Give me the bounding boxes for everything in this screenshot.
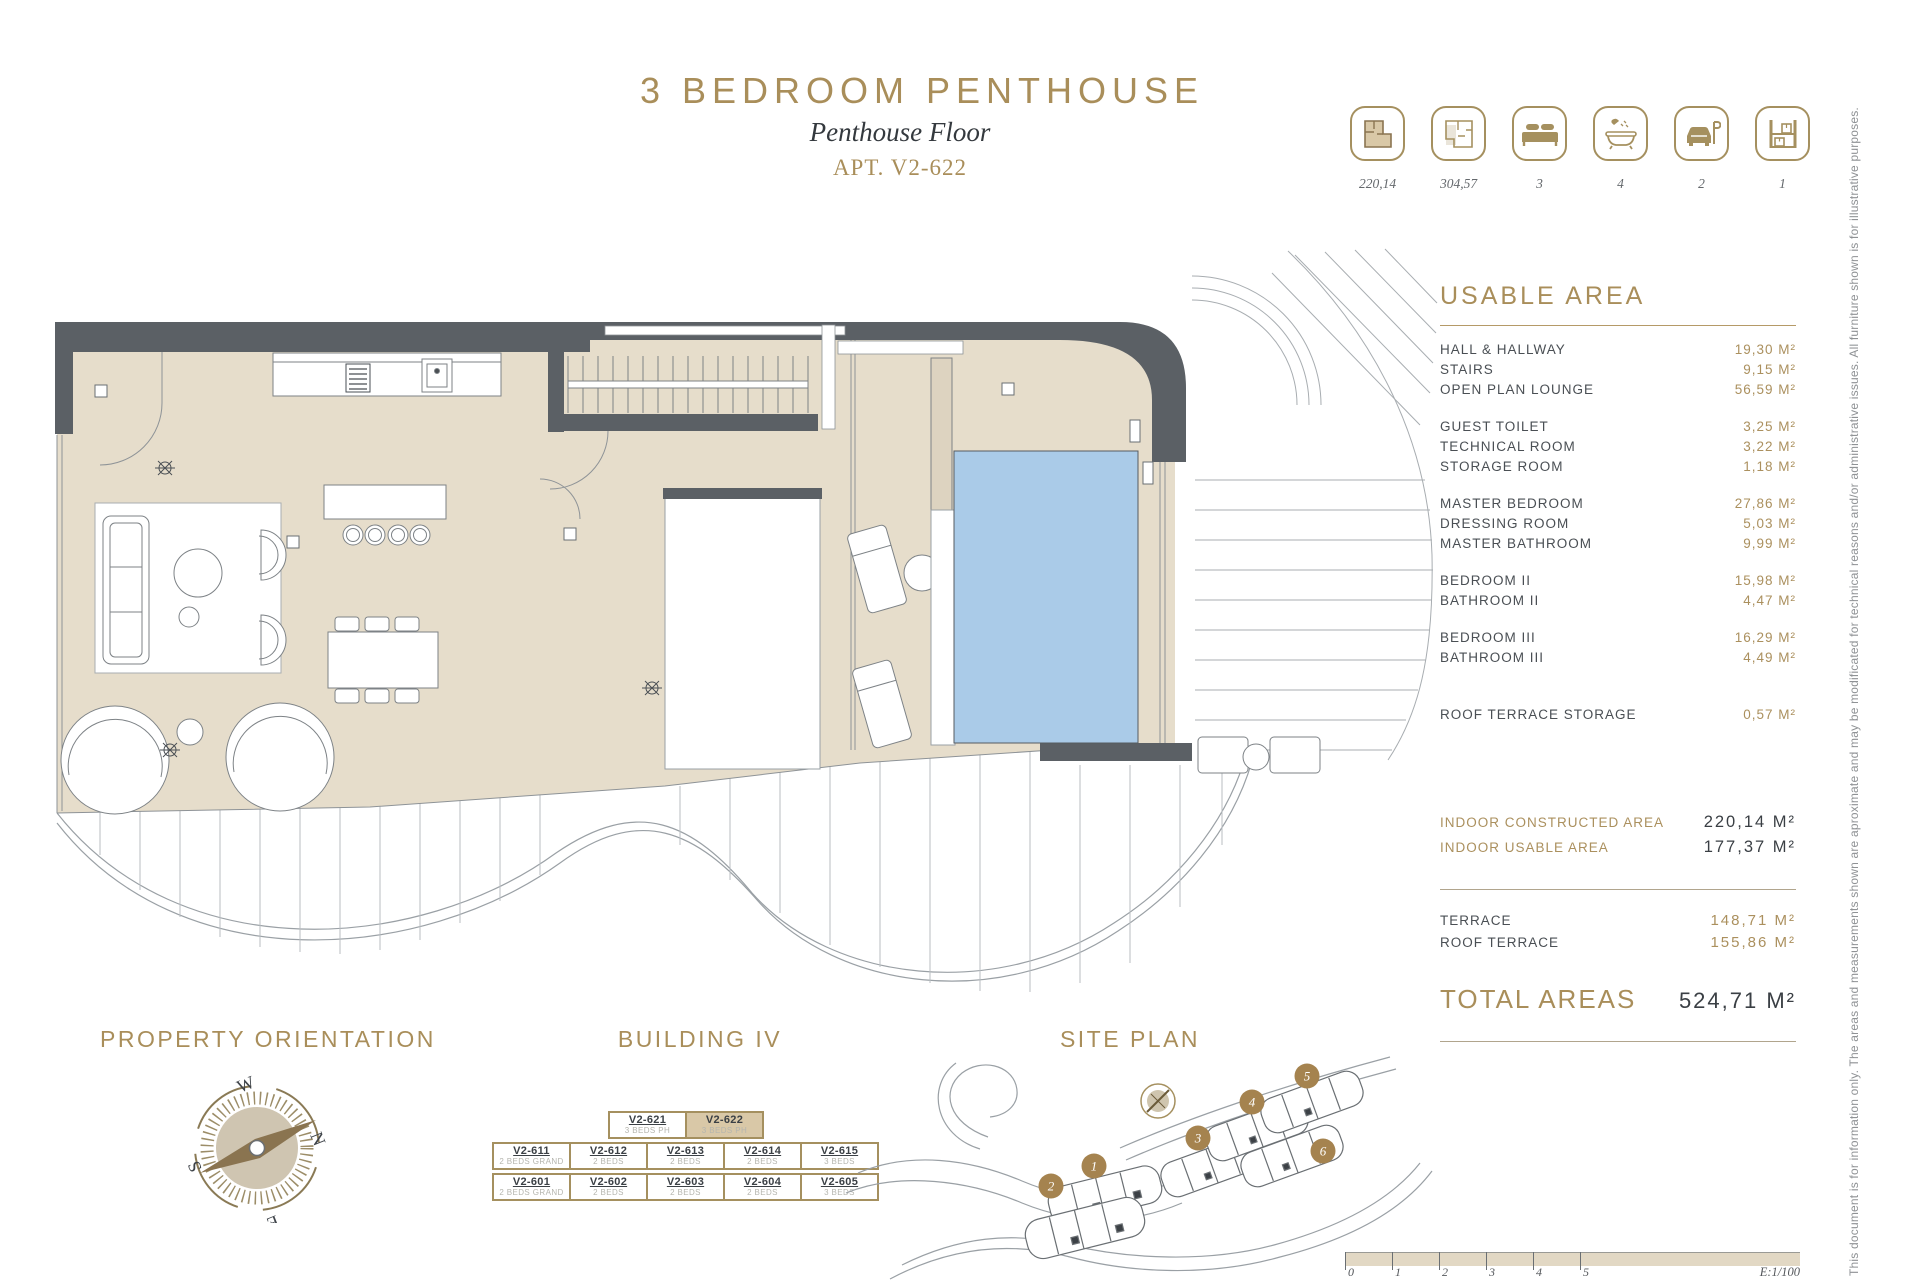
skylight-slot	[605, 326, 845, 335]
site-marker: 2	[1039, 1174, 1064, 1199]
kitchen-counter	[273, 353, 501, 396]
constructed-area-value: 220,14	[1350, 176, 1405, 192]
room-row: MASTER BATHROOM9,99 M²	[1440, 536, 1796, 556]
site-marker: 1	[1082, 1154, 1107, 1179]
room-row: BEDROOM II15,98 M²	[1440, 573, 1796, 593]
total-row: INDOOR USABLE AREA177,37 M²	[1440, 838, 1796, 863]
svg-text:6: 6	[1320, 1144, 1327, 1159]
room-row: TECHNICAL ROOM3,22 M²	[1440, 439, 1796, 459]
total-row: ROOF TERRACE155,86 M²	[1440, 934, 1796, 956]
site-marker: 3	[1186, 1126, 1211, 1151]
living-room	[95, 503, 286, 673]
room-row: MASTER BEDROOM27,86 M²	[1440, 496, 1796, 516]
building-grid: V2-621 3 BEDS PH V2-622 3 BEDS PH V2-611…	[492, 1111, 884, 1207]
page-title: 3 BEDROOM PENTHOUSE	[640, 70, 1160, 112]
building-unit: V2-604 2 BEDS	[723, 1173, 802, 1201]
building-unit: V2-601 2 BEDS GRAND	[492, 1173, 571, 1201]
bedrooms-count: 3	[1512, 176, 1567, 192]
sliding-door-slot	[822, 325, 835, 429]
apartment-number: APT. V2-622	[640, 155, 1160, 181]
total-row: INDOOR CONSTRUCTED AREA220,14 M²	[1440, 813, 1796, 838]
bathrooms-icon	[1593, 106, 1648, 161]
compass-s: S	[183, 1158, 205, 1175]
coffee-table	[174, 549, 222, 597]
room-row: BATHROOM II4,47 M²	[1440, 593, 1796, 613]
terrace-planter	[838, 341, 963, 354]
site-plan-map: 1 2 3 4 5 6	[830, 1053, 1440, 1280]
gold-rule	[1440, 325, 1796, 326]
sofa	[103, 516, 149, 664]
building-unit: V2-602 2 BEDS	[569, 1173, 648, 1201]
scale-ratio: E:1/100	[1760, 1265, 1800, 1280]
room-row: STAIRS9,15 M²	[1440, 362, 1796, 382]
room-row: BATHROOM III4,49 M²	[1440, 650, 1796, 670]
summary-icon-row	[1350, 106, 1810, 161]
compass: W N E S	[182, 1073, 332, 1223]
svg-text:2: 2	[1048, 1179, 1055, 1194]
room-row: GUEST TOILET3,25 M²	[1440, 419, 1796, 439]
total-areas-label: TOTAL AREAS	[1440, 984, 1636, 1015]
floor-plan	[40, 245, 1440, 1035]
site-buildings	[1022, 1067, 1367, 1262]
pool-deck-strip	[931, 510, 955, 745]
building-unit: V2-613 2 BEDS	[646, 1142, 725, 1170]
room-row: OPEN PLAN LOUNGE56,59 M²	[1440, 382, 1796, 402]
total-row: TERRACE148,71 M²	[1440, 912, 1796, 934]
site-marker: 4	[1240, 1090, 1265, 1115]
side-table	[179, 607, 199, 627]
site-plan-heading: SITE PLAN	[1020, 1026, 1240, 1053]
divider	[1440, 889, 1796, 890]
title-block: 3 BEDROOM PENTHOUSE Penthouse Floor APT.…	[640, 70, 1160, 181]
building-heading: BUILDING IV	[560, 1026, 840, 1053]
total-area-value: 304,57	[1431, 176, 1486, 192]
terrace-totals: TERRACE148,71 M² ROOF TERRACE155,86 M²	[1440, 912, 1796, 956]
room-row: STORAGE ROOM1,18 M²	[1440, 459, 1796, 479]
room-row: DRESSING ROOM5,03 M²	[1440, 516, 1796, 536]
scale-bar: 0 1 2 3 4 5 E:1/100	[1345, 1252, 1800, 1280]
building-unit: V2-611 2 BEDS GRAND	[492, 1142, 571, 1170]
site-compass	[1141, 1084, 1175, 1118]
parking-count: 2	[1674, 176, 1729, 192]
total-areas-value: 524,71 M²	[1679, 988, 1796, 1014]
bedrooms-icon	[1512, 106, 1567, 161]
constructed-area-plan-icon	[1350, 106, 1405, 161]
usable-area-panel: USABLE AREA HALL & HALLWAY19,30 M² STAIR…	[1440, 282, 1796, 1042]
pool	[954, 451, 1138, 743]
total-areas-row: TOTAL AREAS 524,71 M²	[1440, 984, 1796, 1015]
divider	[1440, 1041, 1796, 1042]
parking-icon	[1674, 106, 1729, 161]
property-orientation-heading: PROPERTY ORIENTATION	[100, 1026, 436, 1053]
building-unit: V2-621 3 BEDS PH	[608, 1111, 687, 1139]
room-row: BEDROOM III16,29 M²	[1440, 630, 1796, 650]
usable-area-heading: USABLE AREA	[1440, 282, 1796, 311]
roof-terrace-right	[1192, 249, 1437, 760]
void-wall	[663, 488, 822, 499]
svg-text:3: 3	[1194, 1131, 1202, 1146]
indoor-totals: INDOOR CONSTRUCTED AREA220,14 M² INDOOR …	[1440, 813, 1796, 863]
pool-wall-pillar	[931, 358, 952, 510]
storage-icon	[1755, 106, 1810, 161]
site-marker: 5	[1295, 1064, 1320, 1089]
svg-text:1: 1	[1091, 1159, 1098, 1174]
compass-e: E	[264, 1211, 282, 1223]
building-unit: V2-612 2 BEDS	[569, 1142, 648, 1170]
site-marker: 6	[1311, 1139, 1336, 1164]
building-unit-current: V2-622 3 BEDS PH	[685, 1111, 764, 1139]
summary-values: 220,14 304,57 3 4 2 1	[1350, 176, 1810, 192]
svg-text:5: 5	[1304, 1069, 1311, 1084]
room-row: HALL & HALLWAY19,30 M²	[1440, 342, 1796, 362]
floor-subtitle: Penthouse Floor	[640, 117, 1160, 148]
void-lightwell	[665, 497, 820, 769]
terrace-furniture	[1198, 737, 1320, 773]
building-unit: V2-614 2 BEDS	[723, 1142, 802, 1170]
svg-text:4: 4	[1249, 1095, 1256, 1110]
storage-count: 1	[1755, 176, 1810, 192]
building-unit: V2-603 2 BEDS	[646, 1173, 725, 1201]
room-list: HALL & HALLWAY19,30 M² STAIRS9,15 M² OPE…	[1440, 342, 1796, 727]
scale-bar-strip	[1345, 1252, 1800, 1266]
total-area-plan-icon	[1431, 106, 1486, 161]
disclaimer-text: This document is for information only. T…	[1841, 0, 1867, 1276]
bathrooms-count: 4	[1593, 176, 1648, 192]
room-row: ROOF TERRACE STORAGE0,57 M²	[1440, 707, 1796, 727]
